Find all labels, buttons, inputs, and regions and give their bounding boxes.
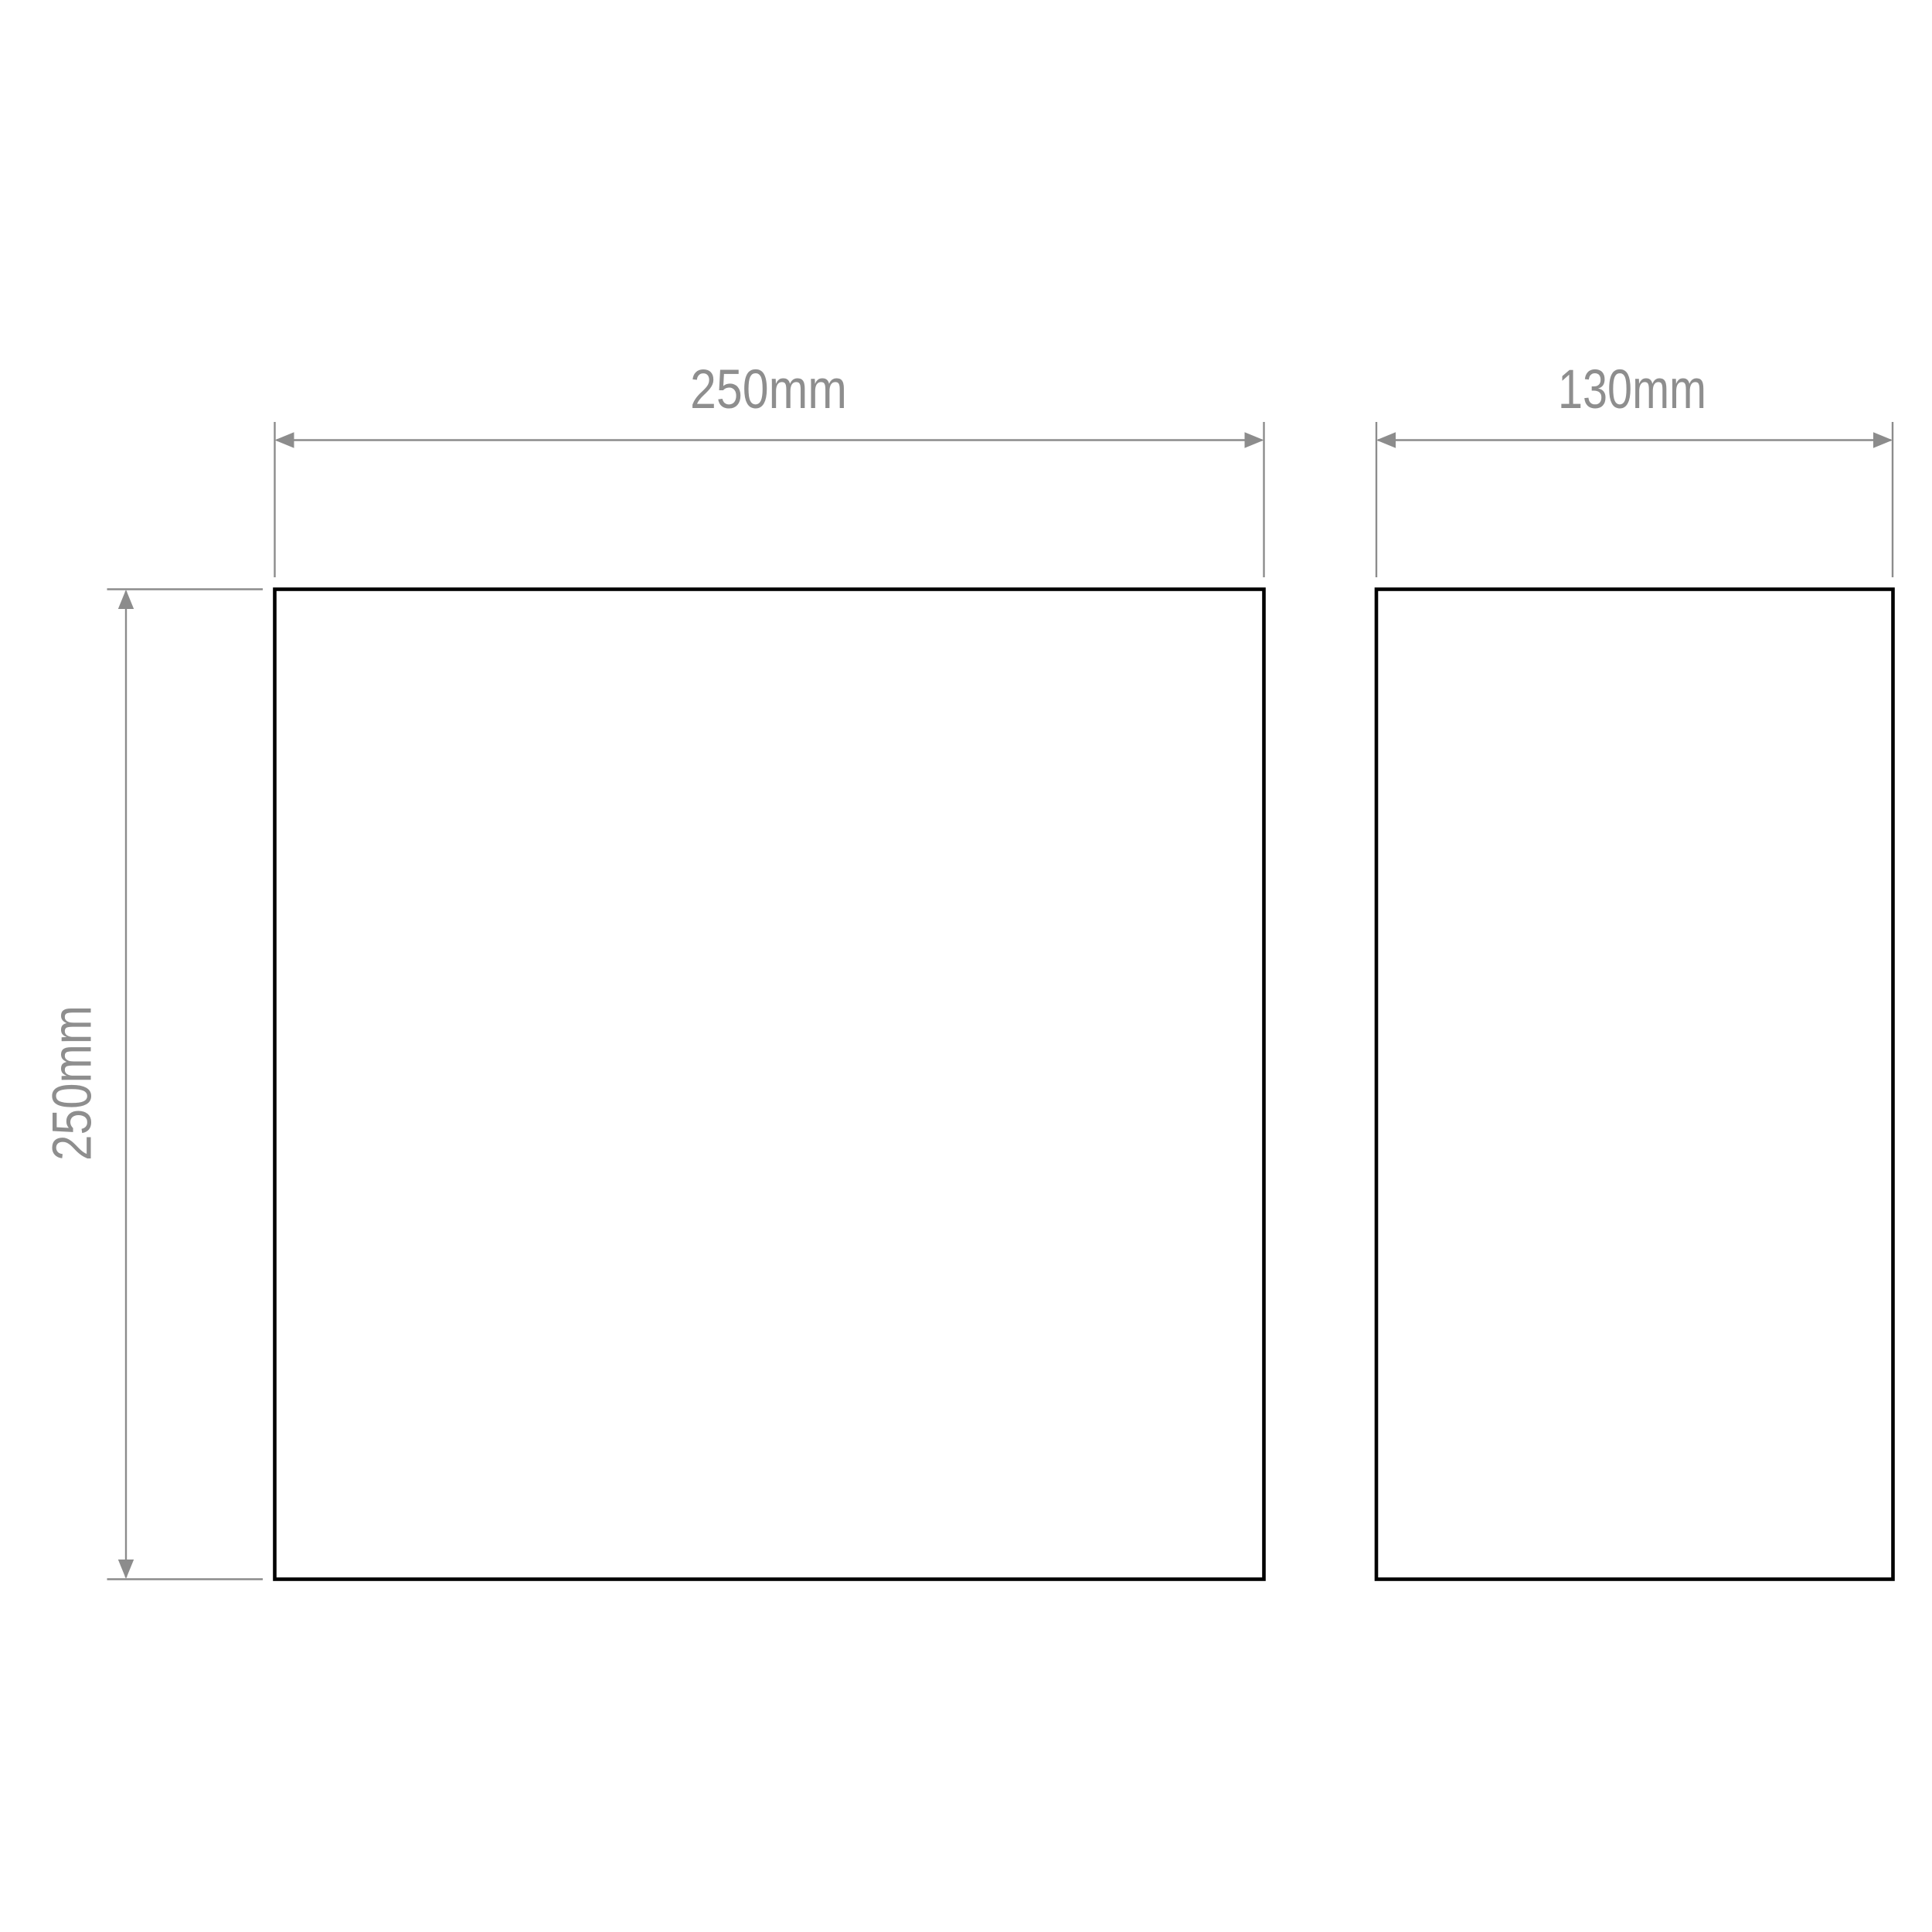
svg-text:250mm: 250mm bbox=[690, 359, 847, 420]
svg-text:250mm: 250mm bbox=[43, 1005, 104, 1161]
svg-text:130mm: 130mm bbox=[1558, 359, 1706, 420]
